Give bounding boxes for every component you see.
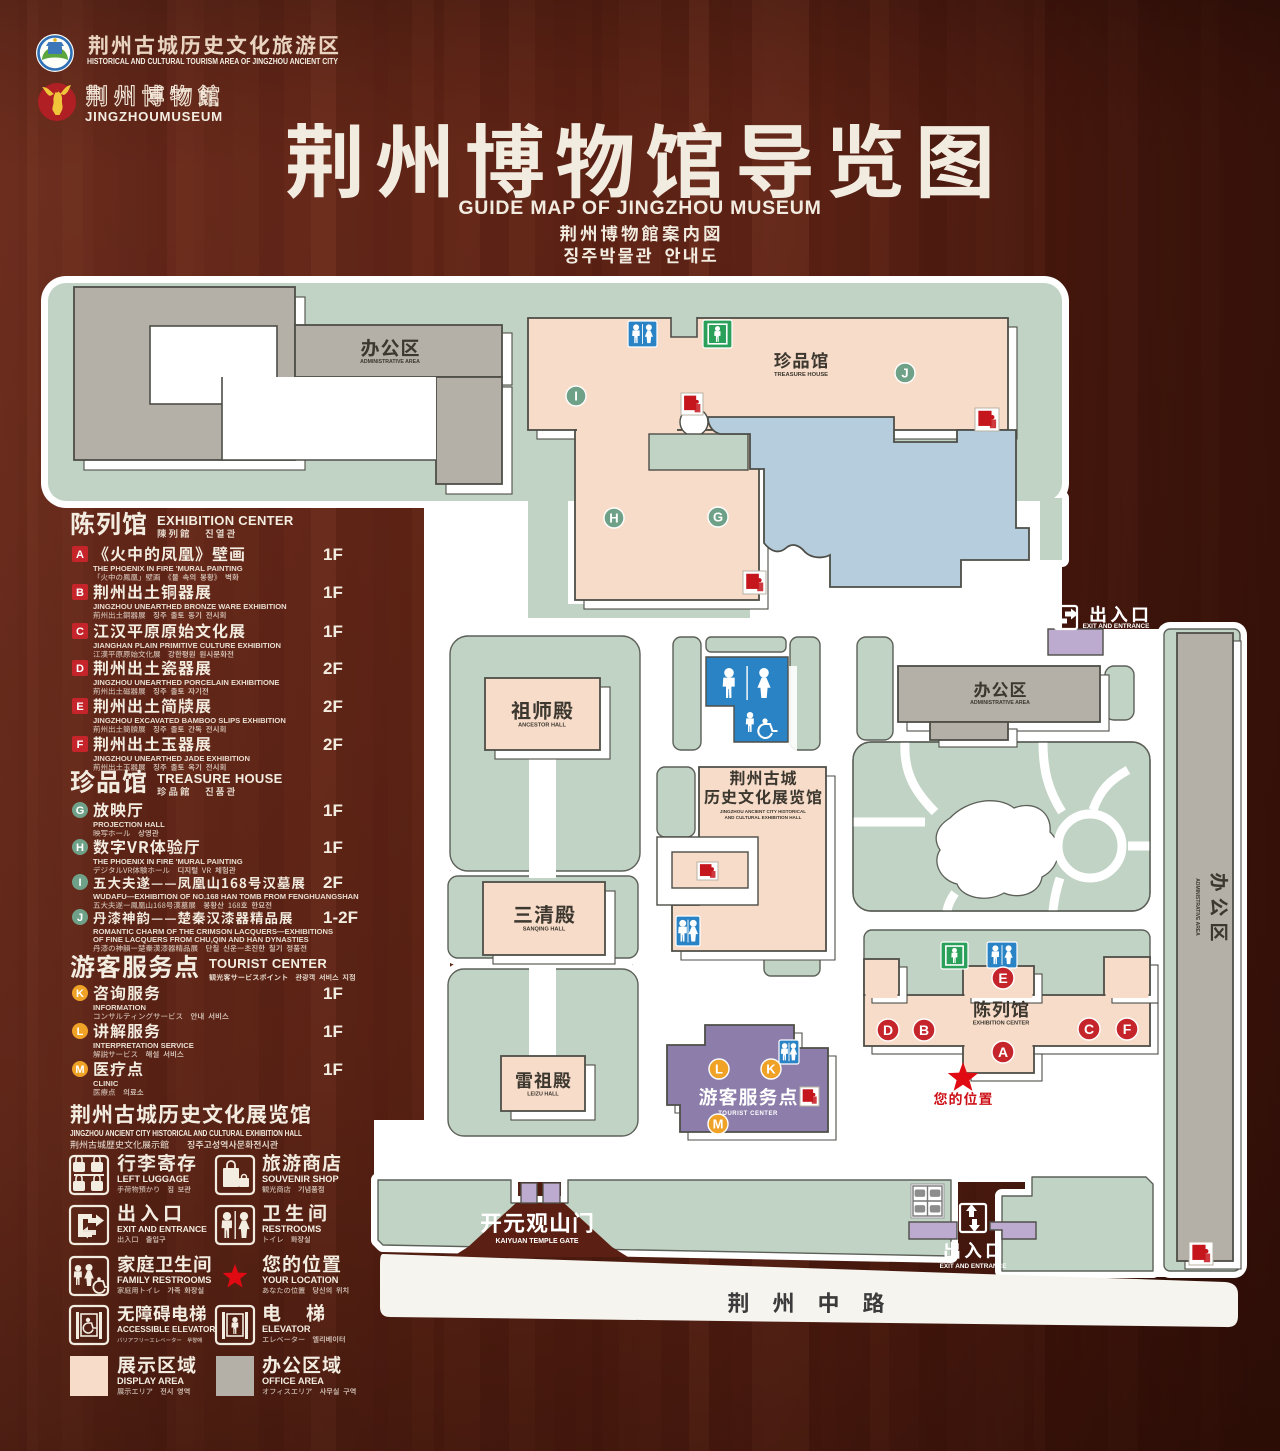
svg-text:C: C	[76, 626, 84, 638]
svg-text:INTERPRETATION SERVICE: INTERPRETATION SERVICE	[93, 1041, 194, 1050]
svg-text:ANCESTOR HALL: ANCESTOR HALL	[518, 723, 566, 729]
svg-text:PROJECTION HALL: PROJECTION HALL	[93, 820, 165, 829]
svg-text:SANQING HALL: SANQING HALL	[523, 927, 566, 933]
svg-text:FAMILY RESTROOMS: FAMILY RESTROOMS	[117, 1275, 211, 1285]
svg-text:CLINIC: CLINIC	[93, 1079, 119, 1088]
svg-text:1F: 1F	[323, 838, 343, 857]
svg-text:JINGZHOU ANCIENT CITY HISTORIC: JINGZHOU ANCIENT CITY HISTORICAL AND CUL…	[70, 1129, 302, 1138]
svg-text:INFORMATION: INFORMATION	[93, 1003, 146, 1012]
svg-text:1-2F: 1-2F	[323, 908, 358, 927]
svg-text:M: M	[713, 1117, 724, 1132]
svg-text:L: L	[77, 1026, 84, 1038]
svg-text:KAIYUAN TEMPLE GATE: KAIYUAN TEMPLE GATE	[495, 1238, 578, 1245]
svg-text:ACCESSIBLE ELEVATOR: ACCESSIBLE ELEVATOR	[117, 1325, 215, 1334]
svg-text:K: K	[76, 988, 84, 1000]
svg-text:2F: 2F	[323, 735, 343, 754]
svg-text:B: B	[76, 587, 84, 599]
svg-text:J: J	[901, 366, 908, 381]
svg-text:J: J	[77, 912, 83, 924]
svg-text:EXIT AND ENTRANCE: EXIT AND ENTRANCE	[1083, 623, 1151, 630]
svg-text:JIANGHAN PLAIN PRIMITIVE CULTU: JIANGHAN PLAIN PRIMITIVE CULTURE EXHIBIT…	[93, 641, 281, 650]
svg-text:DISPLAY AREA: DISPLAY AREA	[117, 1376, 184, 1386]
svg-text:K: K	[766, 1062, 776, 1077]
svg-text:LEIZU HALL: LEIZU HALL	[527, 1091, 559, 1097]
svg-text:2F: 2F	[323, 659, 343, 678]
svg-text:A: A	[76, 549, 84, 561]
svg-text:M: M	[75, 1064, 84, 1076]
svg-text:L: L	[715, 1062, 723, 1077]
svg-text:ELEVATOR: ELEVATOR	[262, 1324, 311, 1334]
svg-text:E: E	[76, 701, 83, 713]
svg-text:GUIDE MAP OF JINGZHOU MUSEUM: GUIDE MAP OF JINGZHOU MUSEUM	[458, 197, 821, 219]
svg-text:JINGZHOU UNEARTHED PORCELAIN E: JINGZHOU UNEARTHED PORCELAIN EXHIBITIONE	[93, 678, 279, 687]
svg-text:2F: 2F	[323, 697, 343, 716]
svg-text:H: H	[609, 511, 618, 526]
svg-text:AND CULTURAL EXHIBITION HALL: AND CULTURAL EXHIBITION HALL	[725, 815, 802, 820]
svg-text:THE PHOENIX IN FIRE 'MURAL PAI: THE PHOENIX IN FIRE 'MURAL PAINTING	[93, 857, 243, 866]
svg-text:ADMINISTRATIVE AREA: ADMINISTRATIVE AREA	[970, 700, 1030, 706]
svg-text:I: I	[574, 389, 578, 404]
svg-text:B: B	[919, 1022, 929, 1038]
svg-text:SOUVENIR SHOP: SOUVENIR SHOP	[262, 1174, 339, 1184]
svg-text:1F: 1F	[323, 545, 343, 564]
svg-text:A: A	[998, 1044, 1008, 1060]
svg-text:RESTROOMS: RESTROOMS	[262, 1224, 321, 1234]
svg-text:HISTORICAL AND CULTURAL TOURIS: HISTORICAL AND CULTURAL TOURISM AREA OF …	[87, 56, 338, 66]
svg-text:JINGZHOU ANCIENT CITY HISTORIC: JINGZHOU ANCIENT CITY HISTORICAL	[720, 809, 806, 814]
svg-text:JINGZHOU EXCAVATED BAMBOO SLIP: JINGZHOU EXCAVATED BAMBOO SLIPS EXHIBITI…	[93, 716, 286, 725]
svg-text:TREASURE HOUSE: TREASURE HOUSE	[157, 771, 283, 786]
svg-text:G: G	[713, 510, 723, 525]
svg-text:TOURIST CENTER: TOURIST CENTER	[209, 956, 327, 971]
svg-text:EXHIBITION CENTER: EXHIBITION CENTER	[973, 1021, 1030, 1027]
svg-text:1F: 1F	[323, 984, 343, 1003]
svg-text:JINGZHOU UNEARTHED JADE EXHIBI: JINGZHOU UNEARTHED JADE EXHIBITION	[93, 754, 250, 763]
svg-text:H: H	[76, 842, 84, 854]
svg-text:LEFT LUGGAGE: LEFT LUGGAGE	[117, 1174, 189, 1184]
svg-text:JINGZHOU UNEARTHED BRONZE WARE: JINGZHOU UNEARTHED BRONZE WARE EXHIBITIO…	[93, 602, 287, 611]
svg-text:WUDAFU—EXHIBITION OF NO.168 HA: WUDAFU—EXHIBITION OF NO.168 HAN TOMB FRO…	[93, 892, 359, 901]
svg-text:THE PHOENIX IN FIRE 'MURAL PAI: THE PHOENIX IN FIRE 'MURAL PAINTING	[93, 564, 243, 573]
svg-text:F: F	[1123, 1021, 1132, 1037]
svg-text:D: D	[883, 1022, 893, 1038]
svg-text:2F: 2F	[323, 873, 343, 892]
svg-text:ADMINISTRATIVE AREA: ADMINISTRATIVE AREA	[360, 359, 420, 365]
svg-text:ADMINISTRATIVE AREA: ADMINISTRATIVE AREA	[1194, 878, 1200, 936]
svg-text:1F: 1F	[323, 622, 343, 641]
svg-text:F: F	[77, 739, 84, 751]
svg-text:EXIT AND ENTRANCE: EXIT AND ENTRANCE	[117, 1224, 207, 1234]
svg-text:1F: 1F	[323, 1022, 343, 1041]
svg-text:YOUR LOCATION: YOUR LOCATION	[262, 1275, 339, 1285]
svg-text:OF FINE LACQUERS FROM CHU,QIN: OF FINE LACQUERS FROM CHU,QIN AND HAN DY…	[93, 935, 309, 944]
svg-text:D: D	[76, 663, 84, 675]
svg-text:TREASURE HOUSE: TREASURE HOUSE	[774, 372, 828, 378]
svg-text:1F: 1F	[323, 583, 343, 602]
svg-text:I: I	[78, 877, 81, 889]
svg-text:OFFICE AREA: OFFICE AREA	[262, 1376, 324, 1386]
svg-text:JINGZHOUMUSEUM: JINGZHOUMUSEUM	[85, 109, 223, 124]
svg-text:EXHIBITION CENTER: EXHIBITION CENTER	[157, 513, 294, 528]
svg-text:1F: 1F	[323, 1060, 343, 1079]
svg-text:TOURIST CENTER: TOURIST CENTER	[718, 1111, 778, 1117]
svg-text:C: C	[1084, 1021, 1094, 1037]
svg-text:1F: 1F	[323, 801, 343, 820]
svg-text:E: E	[998, 970, 1007, 986]
svg-text:EXIT AND ENTRANCE: EXIT AND ENTRANCE	[940, 1263, 1008, 1270]
svg-text:G: G	[76, 805, 85, 817]
